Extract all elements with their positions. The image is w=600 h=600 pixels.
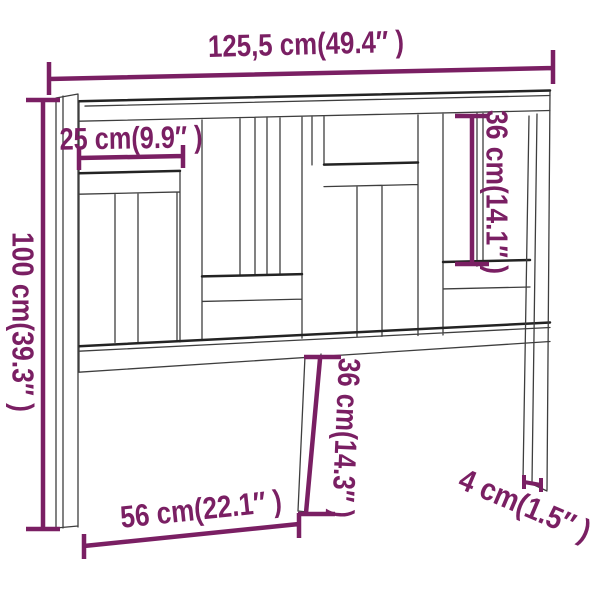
headboard-dimension-diagram: 125,5 cm(49.4″ ) 100 cm(39.3″ ) 25 cm(9.… [0,0,600,600]
left-leg [56,94,78,528]
overall-width-label: 125,5 cm(49.4″ ) [208,24,405,64]
diagram-canvas: 125,5 cm(49.4″ ) 100 cm(39.3″ ) 25 cm(9.… [0,0,600,600]
thickness-label: 4 cm(1.5″ ) [454,462,597,549]
dimension-labels: 125,5 cm(49.4″ ) 100 cm(39.3″ ) 25 cm(9.… [6,24,597,549]
lower-middle-leg-label: 36 cm(14.3″ ) [325,357,367,518]
upper-right-slat-label: 36 cm(14.1″ ) [480,110,515,274]
right-post [523,92,550,491]
overall-height-label: 100 cm(39.3″ ) [6,232,41,412]
top-board-label: 25 cm(9.9″ ) [59,119,203,156]
